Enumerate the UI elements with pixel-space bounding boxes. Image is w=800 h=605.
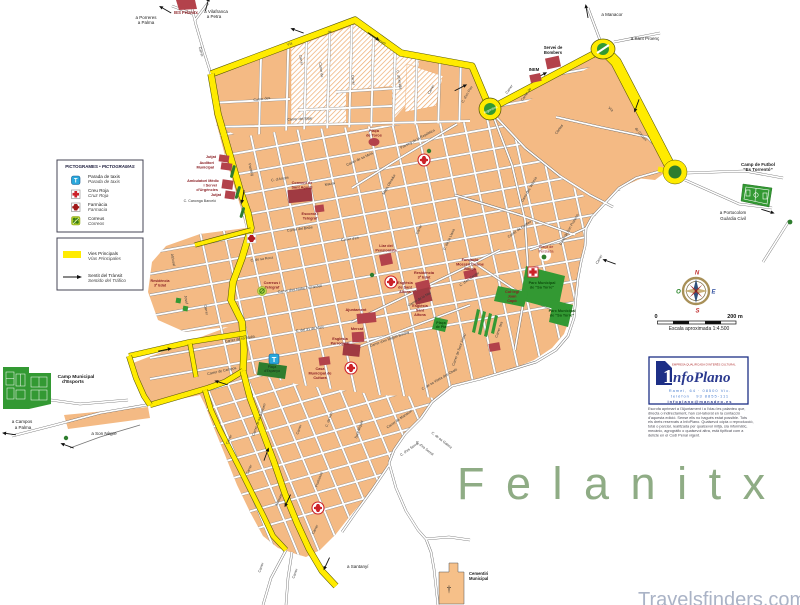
svg-text:a Portocolom: a Portocolom	[720, 210, 747, 215]
svg-text:3ª Edat: 3ª Edat	[418, 276, 432, 280]
svg-text:de Toros: de Toros	[366, 134, 382, 138]
svg-text:Bombers: Bombers	[544, 50, 563, 55]
svg-text:Vías Principales: Vías Principales	[88, 256, 122, 261]
svg-text:total o parcial, realitzada pe: total o parcial, realitzada per qualsevo…	[648, 425, 747, 429]
svg-text:Farmacia: Farmacia	[88, 207, 108, 212]
svg-text:Ambulatori Mèdic: Ambulatori Mèdic	[187, 179, 219, 183]
svg-text:mecànic, agrogràfic o qualsevo: mecànic, agrogràfic o qualsevol altra, e…	[648, 429, 744, 433]
svg-text:de “Sa Torre”: de “Sa Torre”	[530, 286, 555, 290]
svg-text:Pensionista: Pensionista	[375, 249, 397, 253]
svg-text:Parc Municipal: Parc Municipal	[549, 309, 576, 313]
svg-text:Travelsfinders.com: Travelsfinders.com	[638, 589, 800, 605]
svg-text:IES Felanitx: IES Felanitx	[174, 10, 198, 15]
svg-text:Municipal de: Municipal de	[309, 372, 332, 376]
svg-text:3ª Edat: 3ª Edat	[154, 284, 167, 288]
svg-text:a Petra: a Petra	[207, 14, 222, 19]
svg-text:a Palma: a Palma	[15, 425, 32, 430]
svg-text:Convent de: Convent de	[292, 181, 313, 185]
svg-text:Guàrdia Civil: Guàrdia Civil	[720, 216, 746, 221]
svg-text:S: S	[695, 309, 699, 315]
svg-text:d'Esports: d'Esports	[62, 379, 84, 385]
svg-text:Correos: Correos	[88, 221, 105, 226]
svg-text:Joan: Joan	[508, 295, 518, 299]
svg-text:Jutjat: Jutjat	[206, 155, 217, 159]
svg-text:a Palma: a Palma	[138, 20, 155, 25]
svg-text:Fundació: Fundació	[462, 258, 480, 262]
svg-text:N: N	[695, 271, 700, 277]
svg-text:Mossèn Cosme: Mossèn Cosme	[456, 263, 484, 267]
svg-text:Correus i: Correus i	[264, 281, 281, 285]
svg-text:T: T	[74, 178, 78, 184]
svg-text:de Pla: de Pla	[436, 325, 448, 329]
svg-text:Església: Església	[332, 337, 348, 341]
svg-text:Col·legi: Col·legi	[505, 290, 519, 294]
svg-text:O: O	[676, 290, 681, 296]
svg-text:Església: Església	[397, 281, 413, 285]
svg-text:Parc Municipal: Parc Municipal	[529, 281, 556, 285]
svg-text:a Santanyí: a Santanyí	[347, 564, 369, 569]
svg-text:i Servei: i Servei	[203, 184, 217, 188]
svg-text:de Sant: de Sant	[398, 286, 412, 290]
svg-text:Telègraf: Telègraf	[303, 217, 318, 221]
svg-text:Llar del: Llar del	[379, 244, 393, 248]
svg-text:Plaça de: Plaça de	[539, 245, 554, 249]
svg-text:Escrofa aprimart a l'Ajuntamen: Escrofa aprimart a l'Ajuntament i a l'cl…	[648, 407, 745, 411]
svg-text:EMPRESA QUALIFICADA D’INTERÉS: EMPRESA QUALIFICADA D’INTERÉS CULTURAL	[672, 362, 736, 367]
svg-text:els drets reservats a InfoPlan: els drets reservats a InfoPlano. Qualsev…	[648, 420, 754, 424]
svg-text:Municipal: Municipal	[196, 166, 214, 170]
svg-text:Mercat: Mercat	[351, 327, 364, 331]
svg-text:Ramei, 64 · 08500 Vic.: Ramei, 64 · 08500 Vic.	[669, 388, 732, 393]
svg-text:Alfons: Alfons	[399, 290, 411, 294]
svg-text:Plaça: Plaça	[369, 129, 380, 133]
svg-text:PICTOGRAMES • PICTOGRAMAS: PICTOGRAMES • PICTOGRAMAS	[65, 164, 135, 169]
svg-text:telèfon 93 8855-111: telèfon 93 8855-111	[671, 394, 729, 399]
svg-text:d'Urgències: d'Urgències	[196, 188, 218, 192]
svg-text:Telègraf: Telègraf	[265, 286, 280, 290]
svg-text:Municipal: Municipal	[469, 576, 488, 581]
svg-text:Sentido del Tráfico: Sentido del Tráfico	[88, 278, 126, 283]
svg-text:Sant: Sant	[416, 309, 425, 313]
svg-text:“Es Torrentó”: “Es Torrentó”	[743, 167, 772, 172]
svg-text:a Campos: a Campos	[12, 419, 33, 424]
svg-text:Cultura: Cultura	[313, 376, 327, 380]
svg-text:200 m: 200 m	[727, 314, 743, 320]
svg-text:Parada de taxis: Parada de taxis	[88, 179, 121, 184]
svg-text:Bauçà: Bauçà	[464, 267, 476, 271]
svg-text:Auditori: Auditori	[199, 161, 214, 165]
svg-text:Alfons: Alfons	[414, 313, 426, 317]
svg-text:a Manacor: a Manacor	[601, 12, 623, 17]
svg-text:Escala aproximada 1:4.500: Escala aproximada 1:4.500	[669, 326, 730, 332]
svg-text:Residència: Residència	[151, 279, 171, 283]
svg-text:Església: Església	[412, 304, 428, 308]
svg-text:d'aquesta edició. Sense ells n: d'aquesta edició. Sense ells no hagués e…	[648, 416, 747, 420]
svg-text:†: †	[447, 584, 452, 594]
svg-text:0: 0	[654, 314, 657, 320]
svg-text:Escorxa i: Escorxa i	[302, 212, 319, 216]
svg-text:Casa: Casa	[315, 367, 325, 371]
svg-text:delicte en el Codi Penal vigen: delicte en el Codi Penal vigent.	[648, 433, 700, 437]
svg-text:de “Sa Torre”: de “Sa Torre”	[550, 314, 575, 318]
svg-text:infoplano@manadeo.es: infoplano@manadeo.es	[667, 399, 732, 404]
svg-text:1: 1	[663, 366, 673, 388]
svg-text:Ajuntament: Ajuntament	[346, 308, 368, 312]
svg-text:a Sant Proenç: a Sant Proenç	[631, 36, 660, 41]
svg-text:T: T	[272, 355, 277, 364]
svg-text:Residència: Residència	[414, 271, 435, 275]
svg-text:nfoPlano: nfoPlano	[673, 370, 731, 386]
svg-text:Persiada: Persiada	[539, 250, 555, 254]
svg-text:directa o indirectament, han c: directa o indirectament, han col-laborat…	[648, 411, 740, 415]
svg-text:Felanitx: Felanitx	[457, 458, 787, 509]
svg-text:C. Canonga Barceló: C. Canonga Barceló	[184, 199, 216, 203]
svg-text:Jutjat: Jutjat	[211, 193, 222, 197]
svg-text:a Son Nègre: a Son Nègre	[91, 431, 117, 436]
svg-text:Parroquial: Parroquial	[331, 342, 350, 346]
svg-text:INEM: INEM	[529, 67, 540, 72]
svg-text:Capó: Capó	[507, 299, 517, 303]
svg-text:d'Espanya: d'Espanya	[264, 369, 280, 373]
svg-text:Cruz Roja: Cruz Roja	[88, 193, 109, 198]
svg-text:Sant Agustí: Sant Agustí	[292, 186, 314, 190]
